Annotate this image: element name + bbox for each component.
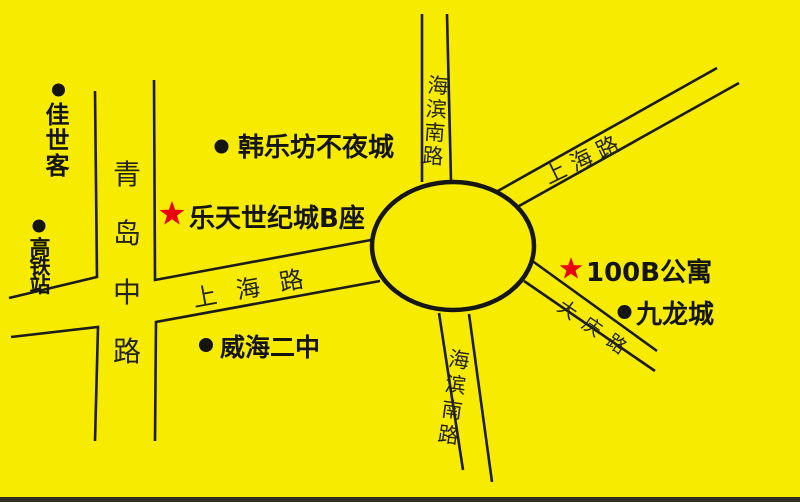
bullet-dot-jiashike [52, 84, 65, 97]
place-label-letian-b: 乐天世纪城B座 [189, 203, 365, 234]
place-label-hanlefang: 韩乐坊不夜城 [238, 132, 394, 163]
bullet-dot-hanlefang [215, 140, 229, 154]
place-label-gaotiezhan: 高铁站 [30, 236, 51, 297]
bullet-dot-gaotiezhan [33, 220, 46, 233]
place-label-weihai-no2: 威海二中 [220, 333, 320, 362]
bullet-dot-jiulongcheng [618, 305, 632, 319]
place-label-100b-apartment: 100B公寓 [586, 257, 712, 288]
place-label-jiashike: 佳世客 [46, 101, 71, 180]
map-background [0, 0, 800, 502]
place-label-jiulongcheng: 九龙城 [635, 300, 714, 330]
map-stage: 青岛中路 海滨南路 海滨南路 上海路 上海路 大庆路 佳世客 高铁站 韩乐坊不夜… [0, 0, 800, 502]
bullet-dot-weihai-no2 [199, 338, 213, 352]
bottom-edge-strip [0, 497, 800, 502]
schematic-map: 青岛中路 海滨南路 海滨南路 上海路 上海路 大庆路 佳世客 高铁站 韩乐坊不夜… [0, 0, 800, 502]
